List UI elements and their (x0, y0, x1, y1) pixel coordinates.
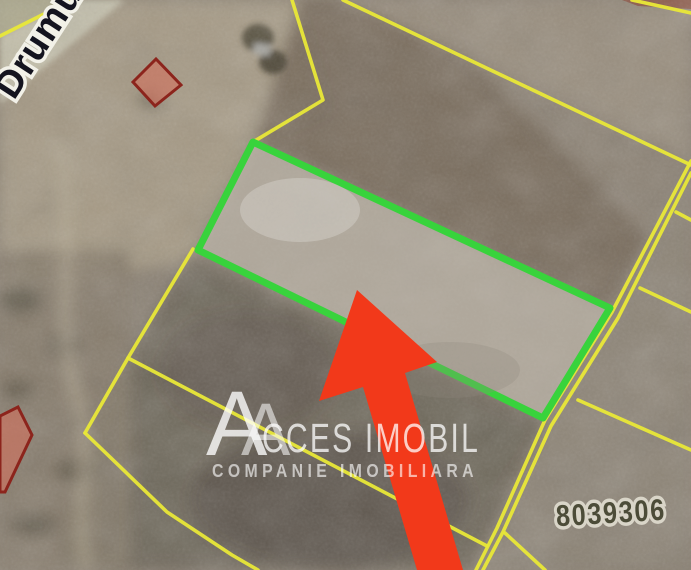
watermark-tagline: COMPANIE IMOBILIARA (212, 461, 478, 481)
watermark-brand: CCES IMOBIL (262, 415, 480, 461)
terrain-patch (240, 178, 360, 242)
satellite-map[interactable]: Drumul A A CCES IMOBIL COMPANIE IMOBILIA… (0, 0, 691, 570)
parcel-number-label: 8039306 (555, 494, 667, 534)
